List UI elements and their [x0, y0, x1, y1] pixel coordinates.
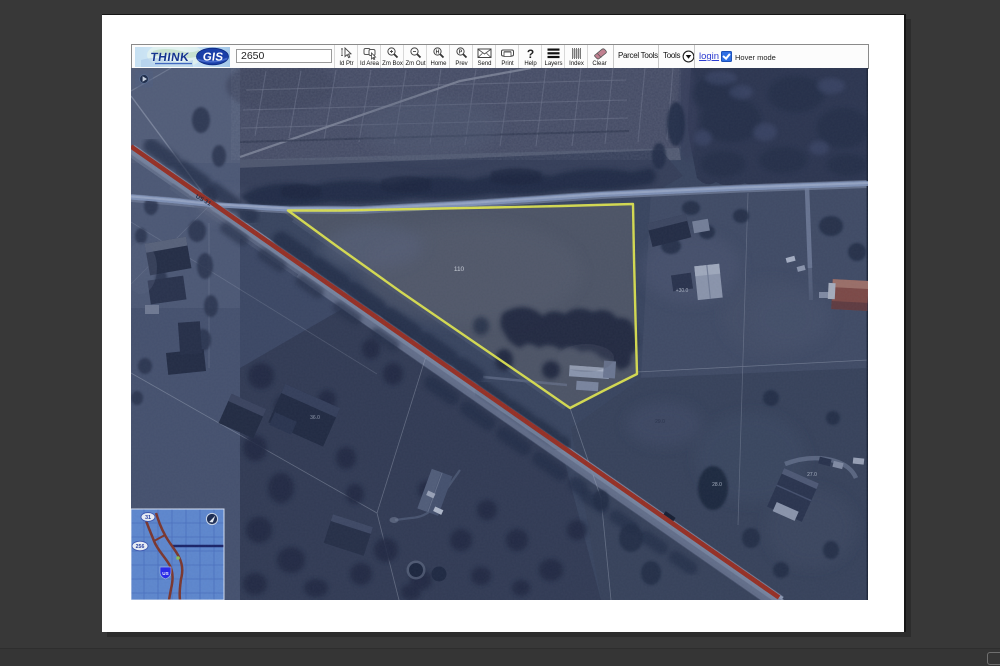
svg-text:THINK: THINK [150, 50, 191, 64]
svg-text:H: H [436, 49, 440, 55]
svg-text:P: P [459, 49, 463, 55]
svg-text:?: ? [527, 47, 534, 60]
svg-text:GIS: GIS [202, 52, 224, 64]
